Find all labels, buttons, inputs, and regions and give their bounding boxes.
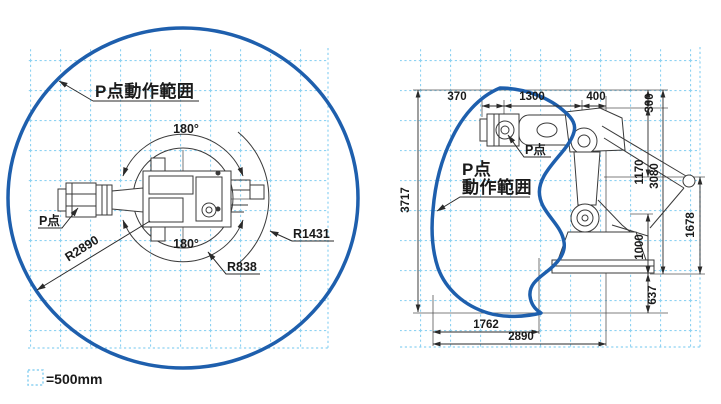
dim-400: 400 — [586, 91, 605, 103]
angle-top-label: 180° — [173, 122, 199, 136]
scale-legend: =500mm — [28, 370, 102, 387]
legend-scale-text: =500mm — [46, 371, 102, 387]
dim-1170: 1170 — [634, 160, 646, 185]
dim-370: 370 — [447, 91, 466, 103]
dim-1762: 1762 — [473, 319, 499, 331]
dim-3717: 3717 — [400, 187, 412, 213]
dim-1000: 1000 — [634, 234, 646, 260]
left-top-view-diagram: P点動作範囲 180° 180° P点 R2890 R838 R1431 — [8, 28, 358, 368]
left-range-label: P点動作範囲 — [95, 81, 194, 101]
right-range-label-line2: 動作範囲 — [462, 177, 532, 197]
right-side-view-diagram: 370 1300 400 3717 300 1170 3080 1000 167… — [400, 47, 705, 347]
p-point-label-left: P点 — [39, 213, 60, 228]
dim-637: 637 — [647, 285, 659, 304]
dim-2890: 2890 — [508, 331, 534, 343]
dim-1678: 1678 — [685, 212, 697, 238]
angle-bottom-label: 180° — [173, 237, 199, 251]
dim-3080: 3080 — [649, 163, 661, 189]
diagram-svg: P点動作範囲 180° 180° P点 R2890 R838 R1431 — [0, 0, 721, 404]
legend-grid-square — [28, 370, 43, 385]
dim-1300: 1300 — [519, 91, 545, 103]
p-point-label-right: P点 — [525, 142, 546, 157]
r838-label: R838 — [227, 260, 257, 274]
r1431-label: R1431 — [293, 227, 330, 241]
robot-range-diagram: P点動作範囲 180° 180° P点 R2890 R838 R1431 — [0, 0, 721, 404]
dim-300: 300 — [644, 93, 656, 112]
right-range-label-line1: P点 — [462, 159, 491, 179]
